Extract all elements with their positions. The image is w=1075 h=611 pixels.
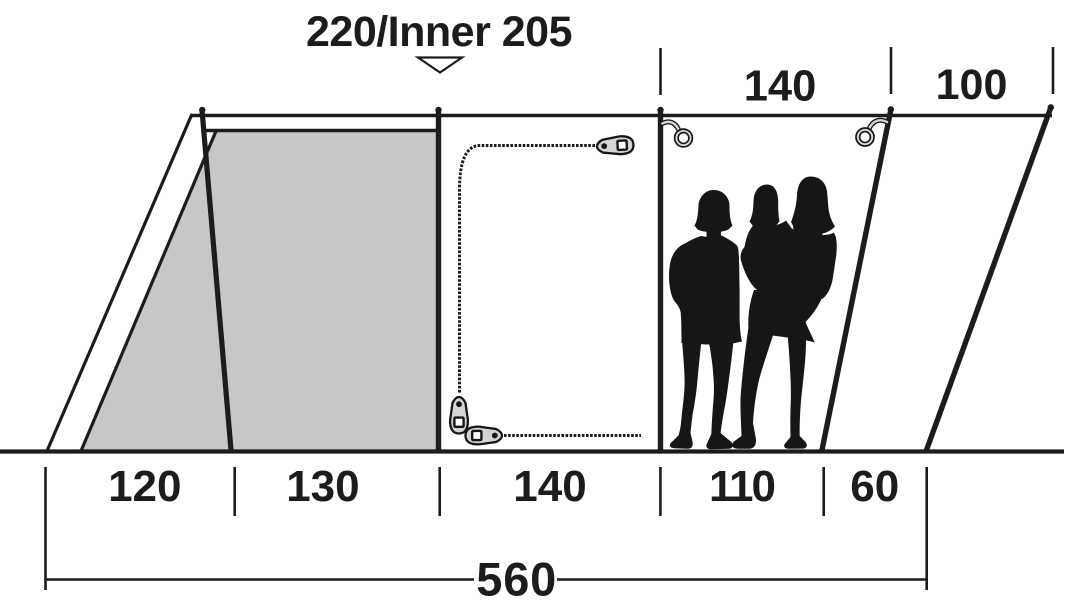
svg-text:120: 120: [108, 462, 181, 511]
svg-text:140: 140: [513, 462, 586, 511]
svg-text:560: 560: [476, 553, 557, 606]
svg-text:220/Inner 205: 220/Inner 205: [306, 8, 572, 56]
svg-text:60: 60: [850, 462, 899, 511]
svg-text:110: 110: [709, 462, 775, 511]
svg-text:130: 130: [286, 462, 359, 511]
svg-text:100: 100: [936, 61, 1008, 109]
svg-text:140: 140: [744, 63, 817, 111]
